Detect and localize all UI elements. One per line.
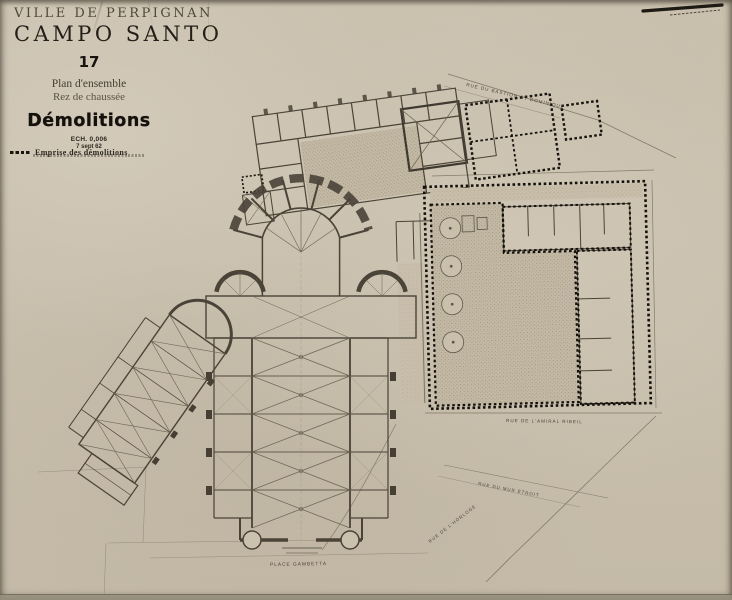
place-label-gambetta: PLACE GAMBETTA <box>270 561 327 568</box>
demolitions-heading: Démolitions <box>14 111 164 131</box>
scan-edge <box>0 594 732 600</box>
stamp-mark <box>640 1 730 23</box>
subtitle-plan-ensemble: Plan d'ensemble <box>14 78 164 90</box>
sheet-number: 17 <box>14 53 164 71</box>
old-church-plan <box>50 277 250 507</box>
cathedral-plan <box>206 178 416 553</box>
street-label-amiral: RUE DE L'AMIRAL RIBEIL <box>506 418 583 424</box>
scale-label: ECH. 0,006 <box>14 136 164 143</box>
legend: Emprise des démolitions <box>10 148 128 157</box>
subtitle-rez-de-chaussee: Rez de chaussée <box>14 91 164 103</box>
city-title: VILLE DE PERPIGNAN <box>14 6 164 21</box>
street-label-horloge: RUE DE L'HORLOGE <box>428 503 478 543</box>
plan-title: CAMPO SANTO <box>14 22 164 46</box>
scanned-plan-sheet: RUE DU BASTION ST DOMINIQUE RUE DE L'AMI… <box>0 0 732 600</box>
street-label-mur: RUE DU MUR ÉTROIT <box>478 481 540 498</box>
demolition-dotted-marker-icon <box>10 151 31 155</box>
title-block: VILLE DE PERPIGNAN CAMPO SANTO 17 Plan d… <box>14 6 164 157</box>
legend-label: Emprise des démolitions <box>35 148 128 157</box>
campo-santo-cloister <box>395 181 651 409</box>
